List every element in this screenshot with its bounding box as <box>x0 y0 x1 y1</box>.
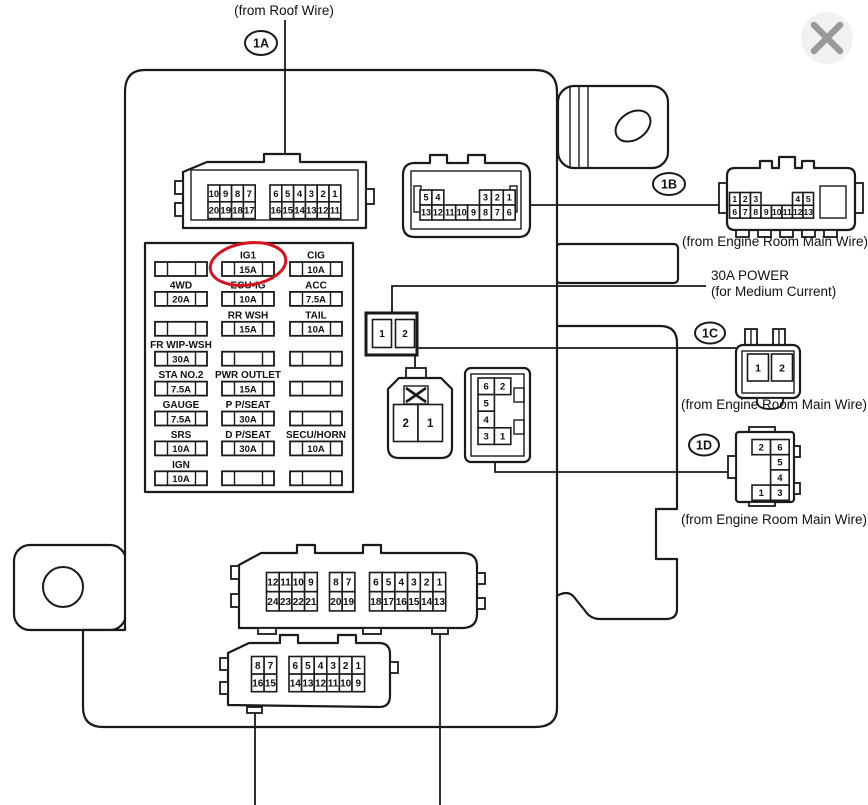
pin-number: 1 <box>759 488 765 499</box>
pin-number: 1 <box>437 578 443 589</box>
pin-number: 9 <box>308 578 314 589</box>
fuse-fr-wip-wsh: FR WIP-WSH30A <box>150 340 212 366</box>
fuse-label: CIG <box>307 251 325 262</box>
fuse-secu-horn: SECU/HORN10A <box>286 430 346 456</box>
pin-number: 2 <box>495 193 500 203</box>
fuse-d-p-seat: D P/SEAT30A <box>222 430 274 456</box>
label-30a-power: 30A POWER <box>711 268 789 283</box>
pin-number: 22 <box>293 597 305 608</box>
pin-number: 7 <box>247 189 252 200</box>
pin-number: 16 <box>396 597 408 608</box>
callout-1a-label: 1A <box>253 37 269 51</box>
fuse-label: PWR OUTLET <box>215 370 281 381</box>
pin-number: 5 <box>285 189 291 200</box>
fuse-sta-no-2: STA NO.27.5A <box>155 370 207 396</box>
fuse-amp: 15A <box>239 384 257 395</box>
pin-number: 2 <box>320 189 325 200</box>
pin-number: 7 <box>268 661 274 672</box>
pin-number: 3 <box>483 193 488 203</box>
pin-number: 4 <box>484 415 490 426</box>
fuse-amp: 10A <box>172 444 190 455</box>
pin-number: 3 <box>309 189 314 200</box>
fuse-blank <box>290 352 342 366</box>
pin-number: 2 <box>779 362 785 374</box>
fuse-blank <box>290 382 342 396</box>
fuse-amp: 30A <box>239 444 257 455</box>
pin-number: 4 <box>435 193 440 203</box>
label-engine-room-1c: (from Engine Room Main Wire) <box>681 397 867 412</box>
pin-number: 1 <box>507 193 512 203</box>
label-roof-wire: (from Roof Wire) <box>234 3 334 18</box>
pin-number: 7 <box>743 207 748 217</box>
fuse-amp: 30A <box>172 355 190 366</box>
callout-1b: 1B <box>653 173 685 195</box>
pin-number: 4 <box>318 661 324 672</box>
pin-number: 19 <box>343 597 355 608</box>
pin-number: 6 <box>732 207 737 217</box>
fuse-pwr-outlet: PWR OUTLET15A <box>215 370 281 396</box>
label-medium-current: (for Medium Current) <box>711 284 836 299</box>
pin-number: 5 <box>806 194 811 204</box>
pin-number: 11 <box>330 206 341 217</box>
close-button[interactable] <box>801 12 853 64</box>
fuse-label: ACC <box>305 280 327 291</box>
pin-number: 12 <box>793 207 803 217</box>
pin-number: 3 <box>484 432 489 443</box>
pin-number: 1 <box>379 329 385 340</box>
pin-number: 9 <box>471 208 476 218</box>
pin-number: 2 <box>424 578 430 589</box>
pin-number: 9 <box>764 207 769 217</box>
pin-number: 13 <box>804 207 814 217</box>
pin-number: 10 <box>209 189 220 200</box>
pin-number: 18 <box>370 597 382 608</box>
pin-number: 4 <box>398 578 404 589</box>
fuse-label: RR WSH <box>228 310 269 321</box>
pin-number: 2 <box>500 382 505 393</box>
fuse-p-p-seat: P P/SEAT30A <box>222 400 274 426</box>
callout-1b-label: 1B <box>661 178 677 192</box>
fuse-label: TAIL <box>305 310 326 321</box>
pin-number: 5 <box>305 661 311 672</box>
fuse-amp: 10A <box>307 444 325 455</box>
pin-number: 11 <box>328 679 339 690</box>
pin-grid-power-plug: 21 <box>394 405 443 442</box>
pin-number: 12 <box>267 578 279 589</box>
fuse-blank <box>222 471 274 485</box>
pin-number: 11 <box>280 578 291 589</box>
fuse-label: GAUGE <box>163 400 200 411</box>
fuse-amp: 15A <box>239 325 257 336</box>
fuse-blank <box>290 412 342 426</box>
fuse-amp: 10A <box>307 325 325 336</box>
callout-1c: 1C <box>695 323 725 344</box>
pin-number: 13 <box>302 679 314 690</box>
fuse-box-diagram-page: IG115ACIG10A4WD20AECU-IG10AACC7.5ARR WSH… <box>0 0 868 805</box>
pin-number: 3 <box>777 488 782 499</box>
pin-number: 5 <box>423 193 428 203</box>
mounting-hole <box>43 567 83 607</box>
pin-number: 20 <box>330 597 342 608</box>
pin-number: 10 <box>772 207 782 217</box>
fuse-blank <box>222 352 274 366</box>
pin-grid-roof-1a: 1098720191817654321161514131211 <box>208 185 341 219</box>
pin-number: 4 <box>297 189 303 200</box>
pin-number: 1 <box>356 661 362 672</box>
pin-number: 1 <box>755 362 761 374</box>
pin-number: 14 <box>294 206 305 217</box>
pin-number: 5 <box>386 578 392 589</box>
fuse-amp: 10A <box>239 295 257 306</box>
mounting-bracket-left <box>14 545 126 630</box>
pin-number: 6 <box>293 661 299 672</box>
fuse-label: IGN <box>172 460 190 471</box>
fuse-box-diagram: IG115ACIG10A4WD20AECU-IG10AACC7.5ARR WSH… <box>0 0 868 805</box>
fuse-label: STA NO.2 <box>158 370 203 381</box>
pin-number: 8 <box>333 578 339 589</box>
pin-number: 7 <box>495 208 500 218</box>
pin-number: 2 <box>743 194 748 204</box>
pin-number: 6 <box>507 208 512 218</box>
pin-number: 19 <box>220 206 231 217</box>
fuse-amp: 15A <box>239 265 257 276</box>
fuse-label: FR WIP-WSH <box>150 340 212 351</box>
pin-number: 23 <box>280 597 292 608</box>
pin-number: 21 <box>305 597 317 608</box>
callout-1d: 1D <box>689 435 719 456</box>
fuse-label: SRS <box>171 430 192 441</box>
mounting-tab-top-right <box>558 86 668 168</box>
fuse-amp: 7.5A <box>171 384 191 395</box>
label-engine-room-1d: (from Engine Room Main Wire) <box>681 512 867 527</box>
pin-number: 20 <box>209 206 220 217</box>
fuse-amp: 10A <box>172 474 190 485</box>
pin-number: 4 <box>777 473 783 484</box>
pin-number: 6 <box>373 578 379 589</box>
pin-number: 12 <box>318 206 329 217</box>
pin-number: 8 <box>753 207 758 217</box>
pin-number: 13 <box>306 206 317 217</box>
fuse-gauge: GAUGE7.5A <box>155 400 207 426</box>
fuse-label: SECU/HORN <box>286 430 346 441</box>
pin-number: 10 <box>340 679 352 690</box>
pin-number: 16 <box>271 206 282 217</box>
pin-number: 2 <box>343 661 349 672</box>
pin-number: 14 <box>421 597 433 608</box>
pin-number: 15 <box>282 206 293 217</box>
pin-number: 5 <box>484 398 490 409</box>
fuse-label: D P/SEAT <box>225 430 270 441</box>
pin-number: 11 <box>783 207 792 217</box>
pin-number: 18 <box>232 206 243 217</box>
fuse-blank <box>290 471 342 485</box>
pin-number: 3 <box>330 661 336 672</box>
pin-number: 13 <box>421 208 431 218</box>
pin-number: 2 <box>759 443 764 454</box>
pin-number: 1 <box>427 418 434 430</box>
pin-number: 17 <box>244 206 255 217</box>
fuse-amp: 20A <box>172 295 190 306</box>
fuse-blank <box>155 262 207 276</box>
fuse-amp: 10A <box>307 265 325 276</box>
pin-number: 12 <box>315 679 327 690</box>
pin-number: 1 <box>500 432 506 443</box>
callout-1a: 1A <box>245 31 277 55</box>
pin-number: 8 <box>255 661 261 672</box>
pin-number: 3 <box>753 194 758 204</box>
pin-number: 8 <box>483 208 488 218</box>
fuse-label: P P/SEAT <box>226 400 271 411</box>
pin-number: 10 <box>457 208 467 218</box>
fuse-rr-wsh: RR WSH15A <box>222 310 274 336</box>
fuse-label: IG1 <box>240 251 257 262</box>
fuse-amp: 7.5A <box>171 414 191 425</box>
fuse-label: 4WD <box>170 280 192 291</box>
pin-number: 3 <box>411 578 417 589</box>
pin-number: 4 <box>795 194 800 204</box>
pin-number: 11 <box>445 208 455 218</box>
pin-number: 5 <box>777 458 783 469</box>
pin-number: 13 <box>434 597 446 608</box>
pin-number: 10 <box>293 578 305 589</box>
pin-number: 6 <box>484 382 489 393</box>
pin-number: 9 <box>223 189 228 200</box>
pin-number: 1 <box>732 194 737 204</box>
pin-grid-bottom-small: 87161565432114131211109 <box>252 657 365 692</box>
fuse-blank <box>155 322 207 336</box>
callout-1c-label: 1C <box>702 327 718 341</box>
pin-number: 7 <box>346 578 352 589</box>
pin-number: 2 <box>403 418 409 430</box>
pin-number: 15 <box>408 597 420 608</box>
pin-number: 14 <box>290 679 302 690</box>
pin-number: 1 <box>332 189 338 200</box>
pin-number: 2 <box>402 329 408 340</box>
pin-number: 9 <box>356 679 362 690</box>
callout-1d-label: 1D <box>696 439 712 453</box>
pin-number: 16 <box>252 679 264 690</box>
pin-number: 6 <box>273 189 278 200</box>
fuse-amp: 30A <box>239 414 257 425</box>
pin-number: 24 <box>267 597 279 608</box>
fuse-amp: 7.5A <box>306 295 326 306</box>
pin-number: 6 <box>777 443 782 454</box>
side-tab-a <box>556 244 678 283</box>
pin-number: 12 <box>433 208 443 218</box>
pin-number: 17 <box>383 597 395 608</box>
label-engine-room-1b: (from Engine Room Main Wire) <box>682 234 868 249</box>
pin-number: 15 <box>265 679 277 690</box>
pin-number: 8 <box>235 189 240 200</box>
